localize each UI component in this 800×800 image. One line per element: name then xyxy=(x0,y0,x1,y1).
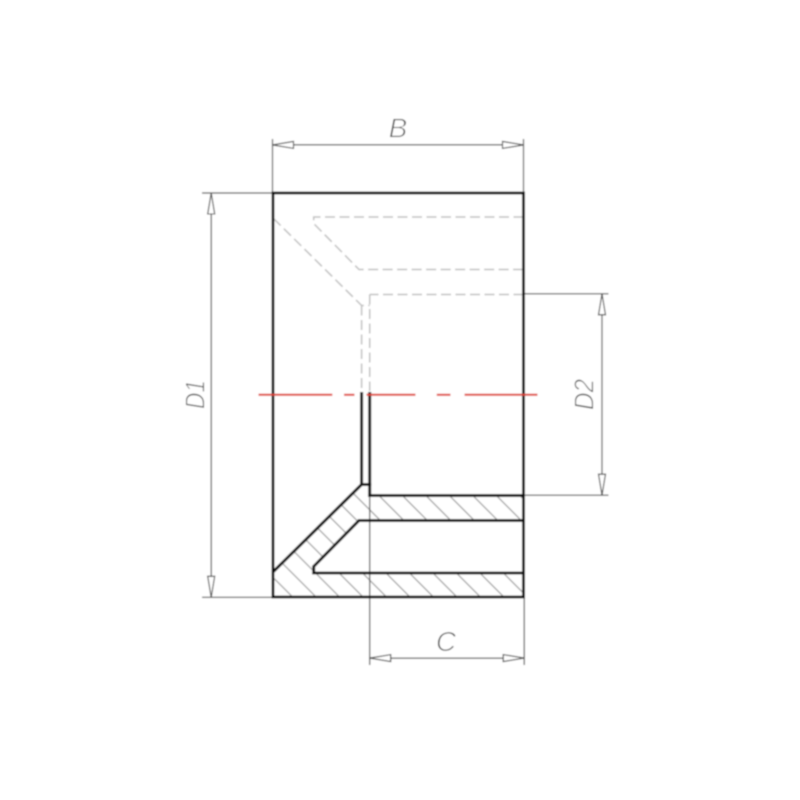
svg-text:D1: D1 xyxy=(180,380,211,409)
svg-text:D2: D2 xyxy=(569,379,600,410)
svg-text:B: B xyxy=(389,113,408,144)
svg-text:C: C xyxy=(436,626,457,657)
